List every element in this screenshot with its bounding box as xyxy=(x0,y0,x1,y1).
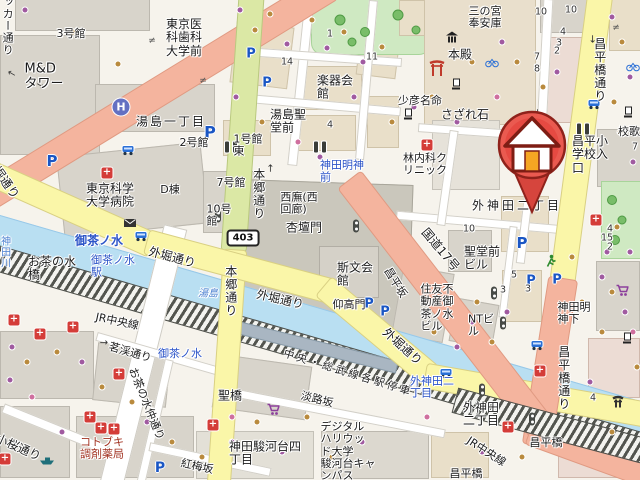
clinic-icon: + xyxy=(109,424,120,435)
map-label: 2号館 xyxy=(180,137,209,149)
poi-dot xyxy=(515,60,520,65)
traffic-signal-icon xyxy=(491,287,497,300)
map-label: 林内科ク リニック xyxy=(403,153,447,178)
map-label: 東京医 科歯科 大学前 xyxy=(166,18,202,58)
map-canvas[interactable]: H++++++++++++++PPPPPPPPPP→→→→→→≠≠≠サッカー通り… xyxy=(0,0,640,480)
poi-dot xyxy=(200,455,205,460)
car-icon xyxy=(121,141,135,160)
clinic-icon: + xyxy=(68,322,79,333)
road-label: 本郷通り xyxy=(251,168,264,220)
station-entrance-icon: ≠ xyxy=(148,36,156,46)
clinic-icon: + xyxy=(591,215,602,226)
map-label: 楽器会 館 xyxy=(317,75,353,102)
parking-icon: P xyxy=(552,273,562,288)
clinic-icon: + xyxy=(535,366,546,377)
poi-dot xyxy=(10,345,15,350)
map-label: 三の宮 奉安庫 xyxy=(469,6,502,31)
station-entrance-icon: ≠ xyxy=(612,23,620,33)
map-label: 東京科学 大学病院 xyxy=(86,183,134,210)
torii-icon xyxy=(429,60,445,80)
road-label: 昌平橋通り xyxy=(592,38,605,103)
poi-dot xyxy=(342,30,347,35)
poi-dot xyxy=(610,430,615,435)
poi-dot xyxy=(425,415,430,420)
poi-dot xyxy=(500,40,505,45)
district-label: 外神田 二丁目 xyxy=(463,402,499,429)
map-label: デジタル ハリウッ ド大学 駿河台キャ ンパス xyxy=(321,421,376,480)
car-icon xyxy=(530,336,544,355)
station-entrance-icon: ≠ xyxy=(199,76,207,86)
map-label: 2 xyxy=(554,47,560,58)
map-label: 斯文会 館 xyxy=(337,262,373,289)
bridge-label: 聖橋 xyxy=(218,389,242,402)
poi-dot xyxy=(635,365,640,370)
poi-dot xyxy=(80,360,85,365)
monument-icon xyxy=(452,79,460,90)
poi-dot xyxy=(238,8,243,13)
poi-dot xyxy=(628,250,633,255)
map-label: M&D タワー xyxy=(24,62,63,91)
clinic-icon: + xyxy=(114,369,125,380)
busstop-label: 昌平小 学校入 口 xyxy=(572,135,608,175)
poi-dot xyxy=(490,340,495,345)
tree-icon xyxy=(348,38,357,47)
poi-dot xyxy=(588,380,593,385)
poi-dot xyxy=(570,255,575,260)
road-label: サッカー通り xyxy=(1,0,13,56)
tree-icon xyxy=(607,195,617,205)
hospital-icon: H xyxy=(113,99,130,116)
map-label: 7号館 xyxy=(217,177,246,189)
poi-dot xyxy=(380,45,385,50)
destination-marker[interactable] xyxy=(494,108,570,216)
tree-icon xyxy=(412,26,421,35)
bridge-label: お茶の水 橋 xyxy=(28,256,76,283)
poi-dot xyxy=(615,225,620,230)
poi-dot xyxy=(170,440,175,445)
poi-dot xyxy=(296,140,301,145)
poi-dot xyxy=(268,12,273,17)
poi-dot xyxy=(455,345,460,350)
poi-dot xyxy=(310,18,315,23)
poi-dot xyxy=(612,100,617,105)
map-label: 5 xyxy=(511,271,517,282)
intersection-label: 外神田二 丁目 xyxy=(410,376,454,401)
district-label: 神田駿河台四 丁目 xyxy=(229,441,301,468)
map-label: 10 xyxy=(463,225,475,236)
poi-dot xyxy=(631,160,636,165)
poi-dot xyxy=(520,455,525,460)
map-label: 14 xyxy=(281,58,293,69)
map-label: 10 xyxy=(565,6,577,17)
poi-dot xyxy=(623,310,628,315)
map-label: 3 xyxy=(525,285,531,296)
poi-dot xyxy=(234,95,239,100)
parking-icon: P xyxy=(246,47,256,62)
map-label: 3号館 xyxy=(57,28,86,40)
map-label: 3 xyxy=(500,286,506,297)
bridge-label: 昌平橋 xyxy=(530,437,563,449)
parking-icon: P xyxy=(47,152,58,170)
tree-icon xyxy=(360,27,370,37)
map-label: コトブキ 調剤薬局 xyxy=(80,437,124,462)
poi-dot xyxy=(8,378,13,383)
route-shield-403: 403 xyxy=(227,230,260,247)
poi-dot xyxy=(495,95,500,100)
map-label: 湯島聖 堂前 xyxy=(270,109,306,136)
shopping-cart-icon xyxy=(616,282,629,301)
clinic-icon: + xyxy=(35,329,46,340)
parking-icon: P xyxy=(262,76,272,91)
map-label: 少彦名命 xyxy=(398,95,442,107)
parking-icon: P xyxy=(364,297,374,312)
map-label: 4 xyxy=(327,121,333,132)
road-label: 昌平橋通り xyxy=(556,346,569,411)
map-label: 8 xyxy=(534,65,540,76)
bridge-label: 昌平橋 xyxy=(450,468,483,480)
poi-dot xyxy=(30,395,35,400)
bicycle-icon xyxy=(485,53,499,72)
poi-dot xyxy=(541,85,546,90)
tree-icon xyxy=(393,10,404,21)
runner-icon xyxy=(546,253,557,272)
map-label: 本殿 xyxy=(448,48,472,61)
map-label: 住友不 動産御 茶ノ水 ビル xyxy=(421,283,454,332)
map-label: 湯島 xyxy=(198,288,218,299)
poi-dot xyxy=(60,430,65,435)
poi-dot xyxy=(361,60,366,65)
map-label: 西廡(西 回廊) xyxy=(280,192,317,217)
poi-dot xyxy=(600,330,605,335)
map-label: 10 xyxy=(535,8,547,19)
poi-dot xyxy=(285,42,290,47)
railway-label: JR中央線 xyxy=(94,311,139,332)
poi-dot xyxy=(116,62,121,67)
bicycle-icon xyxy=(626,57,640,76)
map-label: 2 xyxy=(607,243,613,254)
poi-dot xyxy=(305,415,310,420)
map-label: 杏壇門 xyxy=(286,221,322,234)
poi-dot xyxy=(253,28,258,33)
poi-dot xyxy=(390,120,395,125)
poi-dot xyxy=(475,300,480,305)
tree-icon xyxy=(335,15,346,26)
traffic-signal-icon xyxy=(500,317,506,330)
map-label: 1 xyxy=(327,30,333,41)
clinic-icon: + xyxy=(85,412,96,423)
monument-icon xyxy=(404,109,412,120)
torii-icon xyxy=(612,393,624,412)
shopping-cart-icon xyxy=(267,401,280,420)
poi-dot xyxy=(260,120,265,125)
poi-dot xyxy=(610,15,615,20)
tree-icon xyxy=(618,216,627,225)
river-label: 神田川 xyxy=(0,236,10,269)
map-label: 4 xyxy=(590,394,596,405)
station-label: 御茶ノ水 駅 xyxy=(91,255,135,280)
map-label: NTビ ル xyxy=(468,314,494,339)
oneway-arrow-icon: → xyxy=(100,338,108,349)
intersection-label: 神田明 神下 xyxy=(558,302,591,327)
station-label: 御茶ノ水 xyxy=(75,234,123,247)
map-label: 7 xyxy=(632,143,638,154)
map-label: 仰高門 xyxy=(333,299,366,311)
traffic-signal-icon xyxy=(529,413,535,426)
poi-dot xyxy=(23,8,28,13)
map-label: 10号 館 xyxy=(207,204,232,229)
poi-dot xyxy=(505,310,510,315)
clinic-icon: + xyxy=(208,420,219,431)
map-label: 1号館 東 xyxy=(234,134,263,159)
parking-icon: P xyxy=(380,305,390,320)
clinic-icon: + xyxy=(0,454,11,465)
post-icon xyxy=(124,213,137,232)
parking-icon: P xyxy=(155,460,165,476)
station-label: 御茶ノ水 xyxy=(158,348,202,360)
monument-icon xyxy=(624,107,632,118)
shrine-building-icon xyxy=(445,28,459,47)
poi-dot xyxy=(325,46,330,51)
poi-dot xyxy=(600,275,605,280)
building-block xyxy=(0,331,94,399)
map-label: 11 xyxy=(366,53,378,64)
clinic-icon: + xyxy=(96,423,107,434)
monument-icon xyxy=(623,333,631,344)
poi-dot xyxy=(130,400,135,405)
bus-stop-icon xyxy=(313,141,327,154)
road-label: 本郷通り xyxy=(223,265,236,317)
map-label: 7 xyxy=(534,53,540,64)
parking-icon: P xyxy=(517,234,528,252)
clinic-icon: + xyxy=(9,315,20,326)
intersection-label: 神田明神 前 xyxy=(320,160,364,185)
poi-dot xyxy=(230,415,235,420)
clinic-icon: + xyxy=(503,422,514,433)
poi-dot xyxy=(555,70,560,75)
poi-dot xyxy=(620,40,625,45)
poi-dot xyxy=(55,350,60,355)
map-label: 聖堂前 ビル xyxy=(464,246,500,273)
oneway-arrow-icon: → xyxy=(266,164,277,172)
district-label: 湯島一丁目 xyxy=(136,115,206,128)
poi-dot xyxy=(631,330,636,335)
poi-dot xyxy=(25,360,30,365)
clinic-icon: + xyxy=(102,168,113,179)
map-label: 校歌 xyxy=(618,126,640,138)
poi-dot xyxy=(255,420,260,425)
clinic-icon: + xyxy=(422,140,433,151)
map-label: D棟 xyxy=(160,184,179,196)
traffic-signal-icon xyxy=(353,220,359,233)
poi-dot xyxy=(100,385,105,390)
traffic-signal-icon xyxy=(479,384,485,397)
map-label: さざれ石 xyxy=(441,108,489,121)
poi-dot xyxy=(610,290,615,295)
